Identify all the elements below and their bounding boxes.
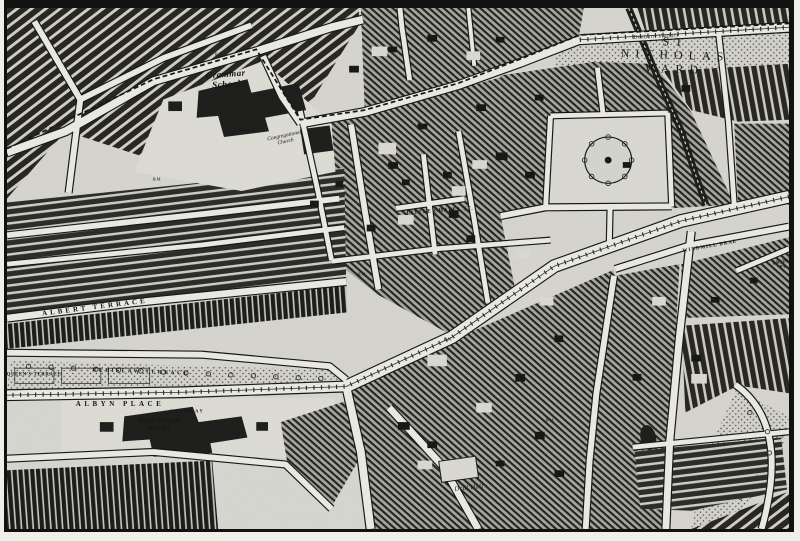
- map-plate: Grammar SchoolStatueCongregational Churc…: [4, 0, 794, 532]
- map-drawing: [7, 8, 789, 529]
- scan-grain: [7, 8, 789, 529]
